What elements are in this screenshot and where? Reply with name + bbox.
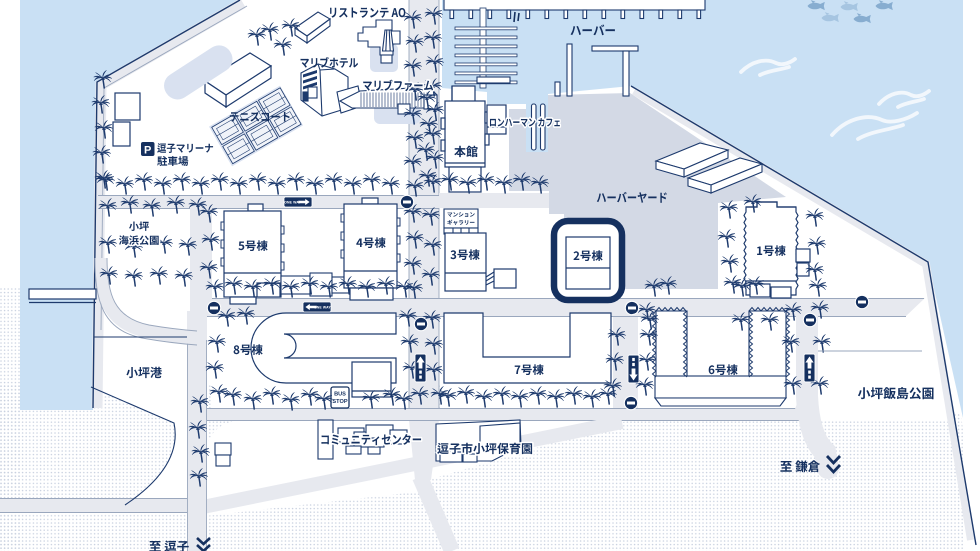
svg-text:BUS: BUS [334, 392, 346, 398]
svg-text:ONE WAY: ONE WAY [284, 201, 301, 205]
svg-text:ONE WAY: ONE WAY [314, 306, 331, 310]
svg-text:STOP: STOP [332, 399, 347, 405]
svg-text:P: P [144, 145, 151, 157]
